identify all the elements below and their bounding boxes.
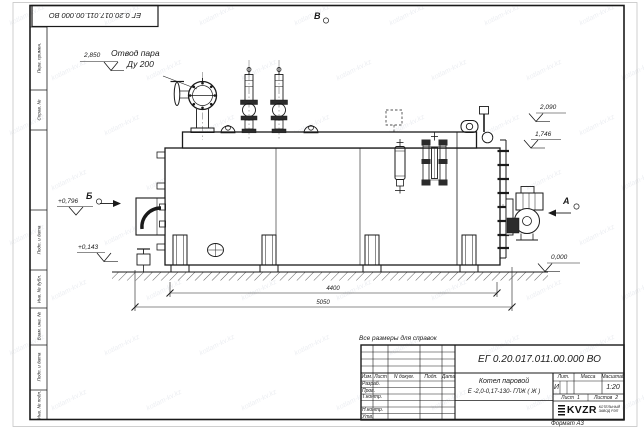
title-doc-number: ЕГ 0.20.017.011.00.000 ВО	[455, 345, 624, 373]
col-data: Дата	[442, 373, 455, 381]
view-label-a: А	[563, 197, 570, 206]
elevation-2090: 2,090	[540, 105, 556, 112]
view-label-b: Б	[86, 192, 92, 201]
elevation-2850: 2,850	[84, 53, 100, 60]
lit-label: Лит.	[553, 373, 574, 381]
elevation-1746: 1,746	[535, 132, 551, 139]
steam-outlet-label: Отвод пара	[111, 49, 160, 58]
elevation-0796: +0,796	[58, 199, 78, 206]
view-label-v: В	[314, 12, 321, 21]
rear-fan-unit	[506, 187, 543, 241]
sheets-cell: Листов2	[588, 394, 624, 401]
scale-value: 1:20	[602, 381, 624, 394]
col-doc: N докум.	[388, 373, 420, 381]
boiler-side-view	[112, 60, 548, 281]
sheet-value: 1	[577, 395, 580, 401]
main-steam-valve	[171, 72, 217, 140]
side-label-sprav: Справ. №	[36, 100, 41, 121]
sheet-label: Лист	[561, 395, 574, 401]
elevation-0143: +0,143	[78, 245, 98, 252]
col-podp: Подп.	[420, 373, 442, 381]
view-v-circle	[323, 18, 328, 23]
side-label-perv: Перв. примен.	[36, 43, 41, 74]
format-label: Формат А3	[551, 421, 584, 427]
side-label-podl: Инв. № подл.	[36, 391, 41, 420]
view-arrow-b	[96, 199, 121, 207]
mass-label: Масса	[574, 373, 602, 381]
side-label-podp1: Подп. и дата	[36, 226, 41, 255]
col-izm: Изм.	[361, 373, 373, 381]
elevation-0000: 0,000	[551, 255, 567, 262]
kvzr-logo-text: KVZR	[567, 404, 597, 416]
row-utv: Утв.	[362, 414, 388, 421]
dim-5050-text: 5050	[308, 300, 338, 306]
row-tkontr: Т.контр.	[362, 394, 388, 401]
hidden-fitting	[386, 110, 402, 132]
front-bottom-fitting	[137, 249, 150, 272]
kvzr-logo-icon	[558, 405, 565, 416]
lifting-lugs	[221, 121, 478, 133]
dim-4400-text: 4400	[318, 286, 348, 292]
safety-valve-2	[271, 60, 288, 140]
side-label-dubl: Инв. № дубл.	[36, 275, 41, 303]
flipped-doc-number: ЕГ 0.20.017.011.00.000 ВО	[32, 5, 158, 26]
lit-value: И	[553, 381, 560, 394]
steam-outlet-dn: Ду 200	[127, 60, 154, 69]
col-list: Лист	[373, 373, 388, 381]
side-label-vzam: Взам. инв. №	[36, 312, 41, 340]
safety-valve-1	[241, 60, 258, 140]
reference-note: Все размеры для справок	[359, 336, 437, 343]
sheets-value: 2	[615, 395, 618, 401]
kvzr-logo-subtext: КОТЕЛЬНЫЙ ЗАВОД РЭП	[599, 406, 620, 414]
scale-label: Масштаб	[602, 373, 624, 381]
side-label-podp2: Подп. и дата	[36, 353, 41, 382]
company-logo: KVZR КОТЕЛЬНЫЙ ЗАВОД РЭП	[554, 401, 624, 419]
burner	[136, 198, 166, 235]
sheet-cell: Лист1	[553, 394, 588, 401]
title-product-type: Е -2,0-0,17-130- ГЛЖ ( Ж )	[455, 386, 553, 397]
drawing-sheet: kotlam-kv.kzkotlam-kv.kzkotlam-kv.kzkotl…	[0, 0, 644, 430]
manhole	[208, 244, 224, 257]
sheets-label: Листов	[594, 395, 612, 401]
shackle-pin	[480, 107, 493, 143]
